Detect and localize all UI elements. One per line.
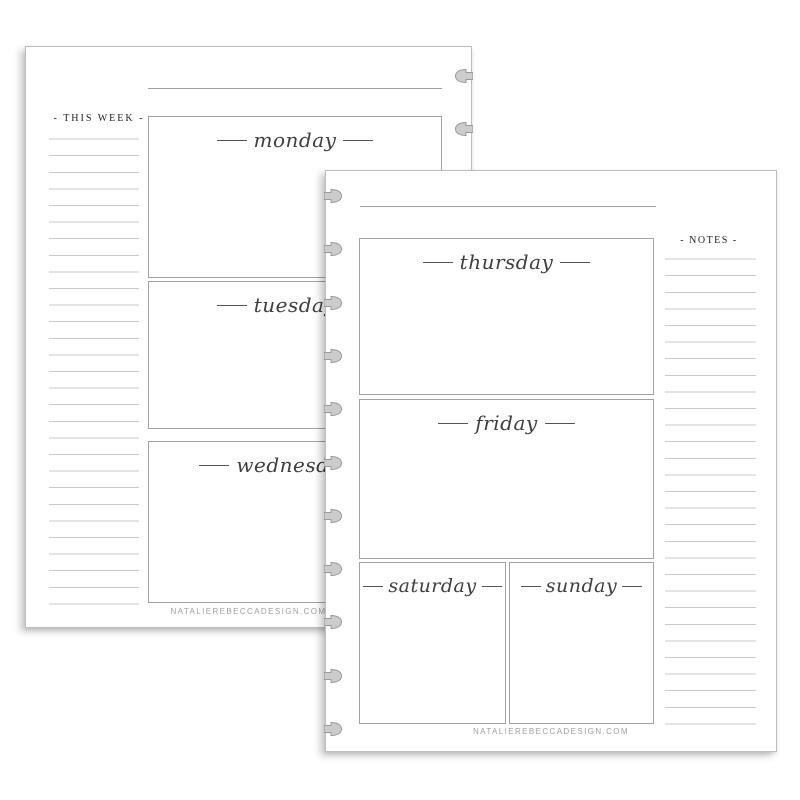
flourish-line-icon [521, 586, 541, 587]
day-box-sunday: sunday [509, 562, 654, 724]
day-name-sunday: sunday [541, 575, 622, 597]
flourish-line-icon [423, 262, 453, 263]
flourish-line-icon [217, 140, 247, 141]
day-header-monday: monday [149, 123, 441, 157]
day-header-sunday: sunday [510, 569, 653, 603]
disc-punch-icon [324, 454, 343, 472]
planner-product-image: - THIS WEEK - monday tuesday wednesday [0, 0, 800, 800]
flourish-line-icon [438, 423, 468, 424]
disc-punch-icon [324, 667, 343, 685]
day-header-thursday: thursday [360, 245, 653, 279]
disc-punch-icon [324, 347, 343, 365]
header-rule [148, 88, 442, 89]
day-box-thursday: thursday [359, 238, 654, 395]
header-rule [360, 206, 656, 207]
flourish-line-icon [560, 262, 590, 263]
day-name-thursday: thursday [453, 250, 561, 274]
flourish-line-icon [343, 140, 373, 141]
disc-punch-icon [324, 507, 343, 525]
day-box-friday: friday [359, 399, 654, 559]
disc-punch-icon [454, 120, 473, 138]
day-header-friday: friday [360, 406, 653, 440]
disc-punch-icon [324, 240, 343, 258]
disc-punch-icon [324, 560, 343, 578]
disc-punch-icon [324, 400, 343, 418]
front-page: - NOTES - thursday friday saturday [325, 170, 777, 752]
flourish-line-icon [199, 465, 229, 466]
notes-ruled-lines [665, 243, 756, 726]
disc-punch-icon [324, 613, 343, 631]
flourish-line-icon [545, 423, 575, 424]
flourish-line-icon [363, 586, 383, 587]
flourish-line-icon [217, 305, 247, 306]
day-header-saturday: saturday [360, 569, 505, 603]
day-name-friday: friday [468, 411, 544, 435]
this-week-ruled-lines [49, 123, 139, 606]
flourish-line-icon [622, 586, 642, 587]
flourish-line-icon [482, 586, 502, 587]
day-name-monday: monday [247, 128, 344, 152]
disc-punch-icon [324, 187, 343, 205]
day-name-saturday: saturday [383, 575, 481, 597]
disc-punch-icon [454, 67, 473, 85]
day-box-saturday: saturday [359, 562, 506, 724]
disc-punch-icon [324, 720, 343, 738]
brand-footer: NATALIEREBECCADESIGN.COM [326, 727, 776, 736]
disc-punch-icon [324, 294, 343, 312]
